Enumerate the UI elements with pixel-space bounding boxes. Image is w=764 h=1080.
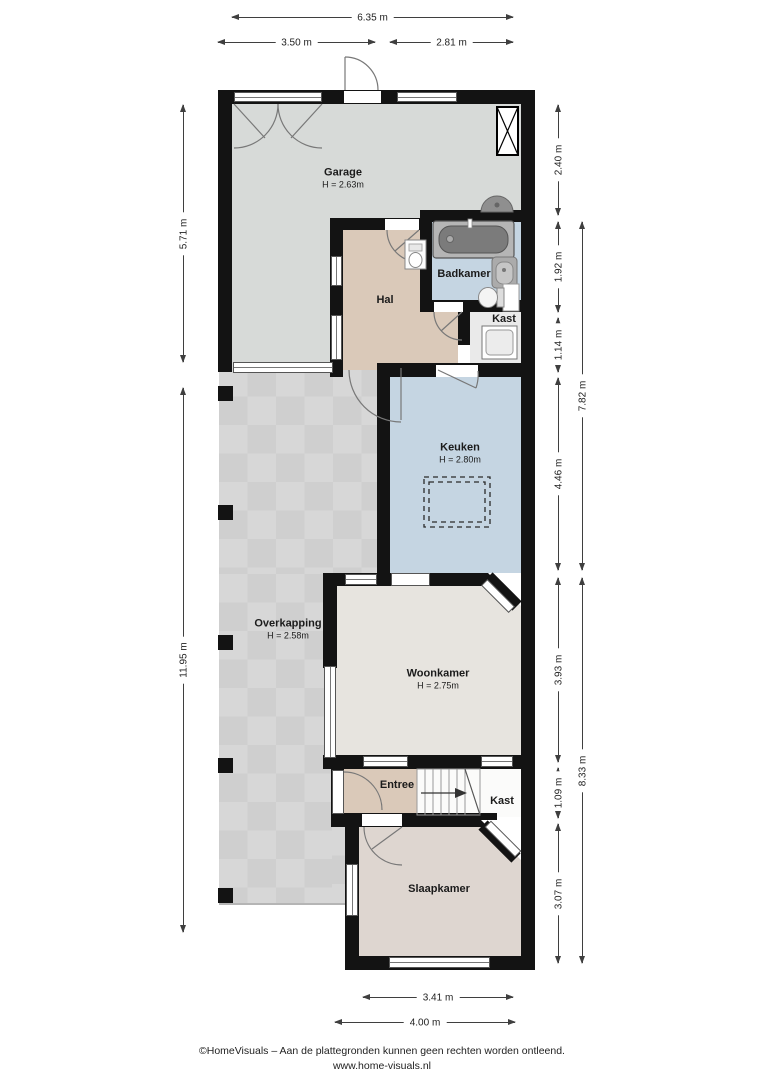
hal-label: Hal (376, 294, 393, 306)
woonkamer-diagonal-window (482, 573, 521, 612)
bathtub-icon (433, 219, 514, 258)
slaapkamer-label: Slaapkamer (408, 883, 470, 895)
badkamer-label: Badkamer (437, 268, 490, 280)
overkapping-label: Overkapping H = 2.58m (254, 618, 321, 641)
footer-website: www.home-visuals.nl (0, 1059, 764, 1074)
washer-icon (482, 326, 517, 359)
keuken-label: Keuken H = 2.80m (439, 442, 481, 465)
skylight-dashed-outline (424, 477, 490, 527)
woonkamer-label: Woonkamer H = 2.75m (407, 668, 470, 691)
floor-plan-page: Garage H = 2.63m Badkamer Hal Kast Keuke… (0, 0, 764, 1080)
footer-disclaimer: ©HomeVisuals – Aan de plattegronden kunn… (0, 1044, 764, 1059)
kast-onder-label: Kast (490, 795, 514, 807)
washbasin-icon (481, 196, 513, 212)
kast-boven-label: Kast (492, 313, 516, 325)
garage-label: Garage H = 2.63m (322, 167, 364, 190)
slaapkamer-diagonal-window (481, 820, 521, 860)
sink-icon (492, 257, 517, 288)
shaft-icon (497, 107, 518, 155)
wc-icon (405, 240, 426, 269)
staircase (417, 769, 480, 815)
entree-label: Entree (380, 779, 414, 791)
toilet-icon (479, 284, 520, 311)
footer: ©HomeVisuals – Aan de plattegronden kunn… (0, 1044, 764, 1074)
